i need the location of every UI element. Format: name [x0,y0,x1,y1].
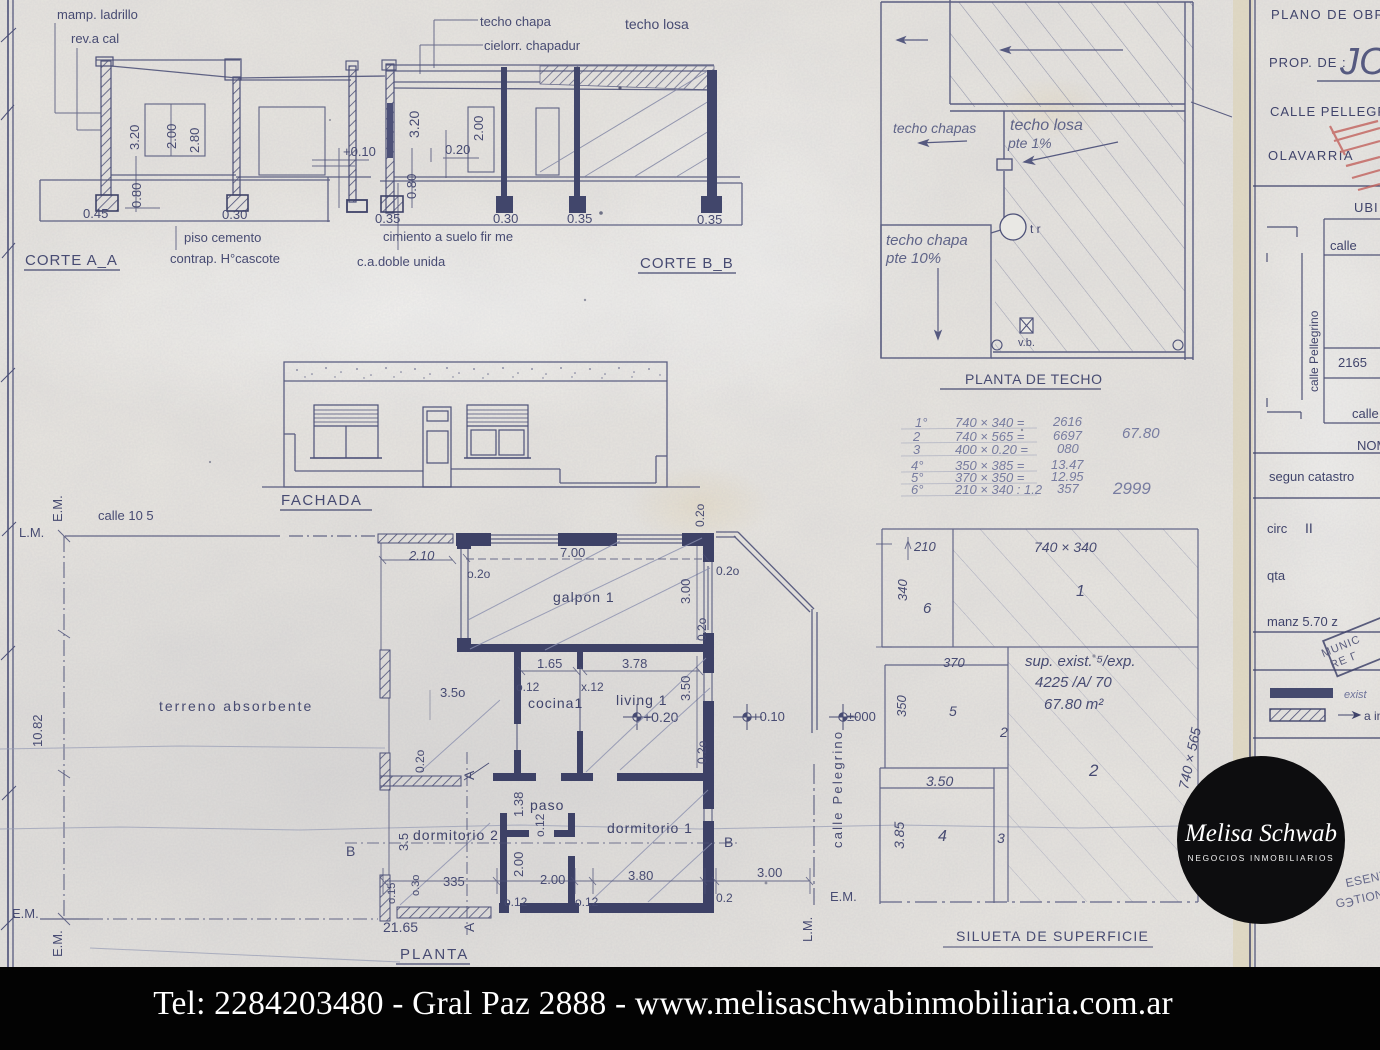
svg-text:UBI: UBI [1354,200,1379,215]
svg-text:2999: 2999 [1112,479,1151,498]
svg-text:a in: a in [1364,709,1380,723]
svg-text:1: 1 [1076,583,1085,600]
svg-text:terreno absorbente: terreno absorbente [159,698,313,714]
svg-text:E.M.: E.M. [50,930,65,957]
svg-text:PROP. DE :: PROP. DE : [1269,55,1347,70]
svg-text:340: 340 [895,579,910,601]
svg-text:740 × 340: 740 × 340 [1034,539,1097,555]
svg-text:0.80: 0.80 [129,183,144,208]
svg-text:1.65: 1.65 [537,656,562,671]
svg-text:0.35: 0.35 [567,211,592,226]
svg-text:galpon 1: galpon 1 [553,589,615,605]
svg-text:L.M.: L.M. [19,525,44,540]
svg-text:350: 350 [894,695,909,717]
svg-text:techo chapa: techo chapa [480,14,552,29]
svg-text:0.35: 0.35 [375,211,400,226]
svg-text:1°: 1° [915,415,927,430]
svg-text:calle: calle [1330,238,1357,253]
svg-text:2.00: 2.00 [164,124,179,149]
svg-text:3.80: 3.80 [628,868,653,883]
svg-text:3.00: 3.00 [757,865,782,880]
svg-text:mamp. ladrillo: mamp. ladrillo [57,7,138,22]
svg-text:3.50: 3.50 [678,676,693,701]
svg-text:E.M.: E.M. [830,889,857,904]
svg-text:2: 2 [1088,761,1099,780]
svg-text:67.80: 67.80 [1122,425,1160,442]
svg-text:piso cemento: piso cemento [184,230,261,245]
svg-text:calle: calle [1352,406,1379,421]
svg-text:techo chapa: techo chapa [886,232,968,249]
svg-text:3.5o: 3.5o [440,685,465,700]
svg-text:PLANTA DE TECHO: PLANTA DE TECHO [965,371,1103,387]
svg-text:0.80: 0.80 [404,174,419,199]
svg-text:0.30: 0.30 [222,207,247,222]
svg-text:v.b.: v.b. [1018,337,1035,349]
svg-text:FACHADA: FACHADA [281,492,362,509]
svg-text:E.M.: E.M. [12,906,39,921]
svg-text:o.12: o.12 [516,680,540,694]
svg-text:calle Pelegrino: calle Pelegrino [830,730,845,848]
svg-text:paso: paso [530,797,564,813]
svg-text:A: A [461,922,477,932]
svg-text:080: 080 [1057,441,1079,456]
svg-text:0.20: 0.20 [445,142,470,157]
svg-text:pte 1%: pte 1% [1007,135,1052,151]
svg-text:6: 6 [923,600,932,617]
svg-text:o.12: o.12 [575,895,599,909]
svg-text:E.M.: E.M. [50,495,65,522]
svg-text:x.12: x.12 [581,680,604,694]
svg-text:cimiento a suelo fir me: cimiento a suelo fir me [383,229,513,244]
svg-text:3.78: 3.78 [622,656,647,671]
svg-text:2616: 2616 [1052,414,1083,429]
svg-text:segun catastro: segun catastro [1269,469,1354,484]
svg-text:CORTE B_B: CORTE B_B [640,255,734,272]
svg-text:techo losa: techo losa [625,16,689,32]
svg-text:7.00: 7.00 [560,545,585,560]
svg-text:OLAVARRIA: OLAVARRIA [1268,148,1354,163]
svg-text:contrap. H°cascote: contrap. H°cascote [170,251,280,266]
svg-text:living 1: living 1 [616,692,668,708]
svg-text:210: 210 [913,539,936,554]
svg-text:pte 10%: pte 10% [885,250,941,267]
svg-text:0.2: 0.2 [716,891,733,905]
svg-text:10.82: 10.82 [30,714,45,747]
svg-text:L.M.: L.M. [800,917,815,942]
svg-text:o.2o: o.2o [467,567,491,581]
svg-text:rev.a cal: rev.a cal [71,31,119,46]
svg-text:calle Pellegrino: calle Pellegrino [1307,310,1321,392]
svg-text:3: 3 [997,830,1005,846]
svg-text:3: 3 [913,442,921,457]
svg-text:exist: exist [1344,689,1368,701]
svg-text:3.85: 3.85 [891,822,907,849]
svg-text:0.2o: 0.2o [695,617,709,641]
svg-text:±000: ±000 [847,709,876,724]
svg-text:II: II [1305,520,1313,536]
svg-text:0.2o: 0.2o [716,564,740,578]
svg-text:SILUETA DE SUPERFICIE: SILUETA DE SUPERFICIE [956,928,1149,944]
svg-text:o.12: o.12 [533,813,547,837]
svg-text:cielorr. chapadur: cielorr. chapadur [484,38,581,53]
svg-text:4225 /A/ 70: 4225 /A/ 70 [1035,674,1112,691]
svg-text:3.5: 3.5 [396,833,411,851]
svg-text:3.00: 3.00 [678,579,693,604]
svg-text:qta: qta [1267,568,1286,583]
svg-text:+0.10: +0.10 [752,709,785,724]
svg-text:o.12: o.12 [504,895,528,909]
svg-text:1.38: 1.38 [511,792,526,817]
svg-text:PLANTA: PLANTA [400,946,469,963]
svg-text:335: 335 [443,874,465,889]
svg-text:B: B [724,834,733,850]
svg-text:0.2o: 0.2o [693,503,707,527]
svg-text:A: A [461,770,477,780]
svg-text:CALLE PELLEGR: CALLE PELLEGR [1270,104,1380,119]
svg-text:4: 4 [938,828,947,845]
svg-text:0.45: 0.45 [83,206,108,221]
svg-text:+0.10: +0.10 [343,144,376,159]
svg-text:3.20: 3.20 [127,125,142,150]
svg-text:2: 2 [999,724,1008,740]
svg-text:0.35: 0.35 [697,212,722,227]
svg-text:0.2o: 0.2o [413,749,427,773]
svg-text:B: B [346,843,355,859]
svg-text:circ: circ [1267,521,1288,536]
svg-text:2.10: 2.10 [408,548,435,563]
svg-text:calle 10 5: calle 10 5 [98,508,154,523]
svg-text:2.00: 2.00 [471,116,486,141]
svg-text:CORTE A_A: CORTE A_A [25,252,118,269]
svg-text:PLANO DE OBRA: PLANO DE OBRA [1271,7,1380,22]
svg-text:o.15: o.15 [386,883,398,904]
svg-text:370: 370 [943,655,965,670]
svg-text:o.3o: o.3o [410,875,422,896]
svg-text:dormitorio 2: dormitorio 2 [413,827,499,843]
svg-text:5: 5 [949,703,957,719]
svg-text:techo chapas: techo chapas [893,120,976,136]
svg-text:0.30: 0.30 [493,211,518,226]
svg-text:0.2o: 0.2o [695,740,709,764]
svg-text:manz 5.70 z: manz 5.70 z [1267,614,1338,629]
svg-text:2165: 2165 [1338,355,1367,370]
svg-text:+0.20: +0.20 [643,709,679,725]
svg-text:dormitorio 1: dormitorio 1 [607,820,693,836]
svg-text:NOM: NOM [1357,438,1380,453]
svg-text:cocina1: cocina1 [528,695,583,711]
svg-text:techo losa: techo losa [1010,117,1083,134]
svg-text:JC: JC [1339,41,1380,83]
svg-text:c.a.doble unida: c.a.doble unida [357,254,446,269]
svg-text:2.00: 2.00 [511,852,526,877]
svg-text:67.80 m²: 67.80 m² [1044,696,1104,713]
svg-text:t r: t r [1030,222,1041,236]
svg-text:sup. exist. ⁵/exp.: sup. exist. ⁵/exp. [1025,653,1136,670]
svg-text:2.00: 2.00 [540,872,565,887]
svg-text:357: 357 [1057,481,1079,496]
svg-text:3.20: 3.20 [406,111,422,138]
svg-text:2.80: 2.80 [187,128,202,153]
svg-text:740 × 340 =: 740 × 340 = [955,415,1025,430]
svg-text:3.50: 3.50 [926,773,953,789]
